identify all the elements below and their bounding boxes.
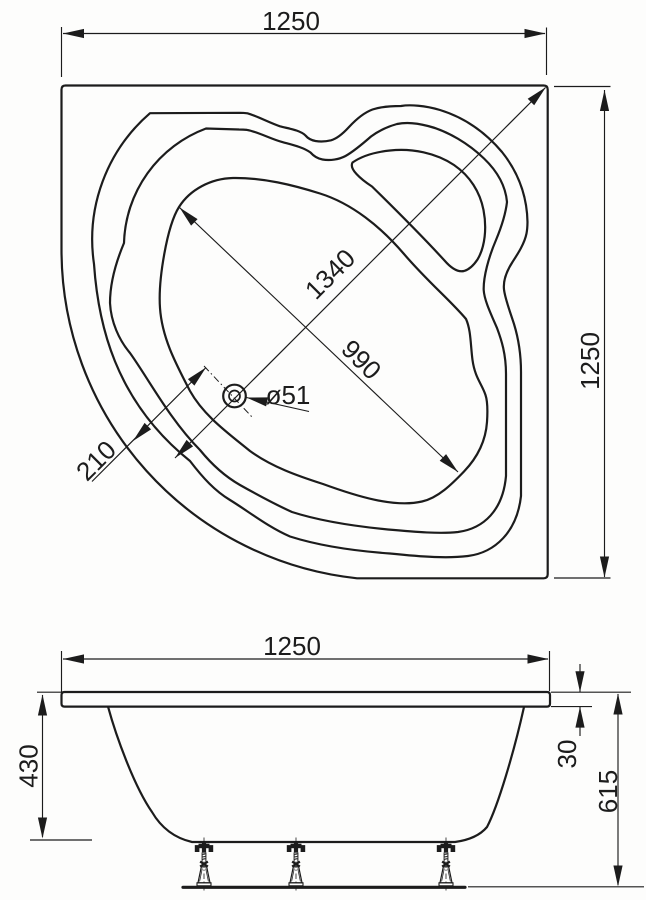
svg-text:430: 430 [14,744,44,787]
svg-text:1250: 1250 [262,6,320,36]
svg-text:210: 210 [70,435,122,487]
svg-text:615: 615 [593,770,623,813]
svg-text:30: 30 [552,740,582,769]
svg-text:1250: 1250 [575,332,605,390]
svg-text:990: 990 [335,334,387,386]
svg-text:ø51: ø51 [266,380,311,410]
svg-text:1250: 1250 [263,631,321,661]
svg-text:1340: 1340 [299,243,361,305]
